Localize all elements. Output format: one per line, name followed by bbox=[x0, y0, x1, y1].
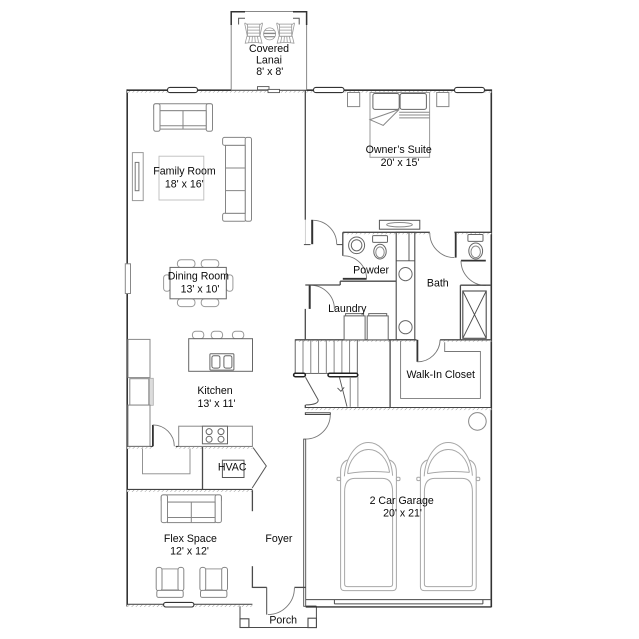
svg-text:HVAC: HVAC bbox=[218, 462, 247, 474]
svg-text:Dining Room: Dining Room bbox=[168, 270, 229, 282]
svg-text:Owner’s Suite: Owner’s Suite bbox=[366, 144, 432, 156]
svg-text:Powder: Powder bbox=[353, 264, 389, 276]
svg-text:Porch: Porch bbox=[269, 614, 297, 626]
svg-text:Lanai: Lanai bbox=[256, 54, 282, 66]
svg-text:Flex Space: Flex Space bbox=[164, 533, 217, 545]
svg-text:Laundry: Laundry bbox=[328, 303, 367, 315]
svg-text:Kitchen: Kitchen bbox=[197, 385, 232, 397]
svg-text:20' x 21': 20' x 21' bbox=[383, 508, 422, 520]
svg-text:18' x 16': 18' x 16' bbox=[165, 179, 204, 191]
svg-text:Family Room: Family Room bbox=[153, 166, 216, 178]
svg-text:20' x 15': 20' x 15' bbox=[381, 157, 420, 169]
svg-text:Covered: Covered bbox=[249, 43, 289, 55]
svg-text:2 Car Garage: 2 Car Garage bbox=[370, 495, 434, 507]
svg-text:Bath: Bath bbox=[427, 278, 449, 290]
svg-text:13' x 10': 13' x 10' bbox=[181, 284, 220, 296]
svg-text:12' x 12': 12' x 12' bbox=[170, 546, 209, 558]
svg-text:Foyer: Foyer bbox=[265, 533, 293, 545]
svg-text:8' x 8': 8' x 8' bbox=[256, 66, 283, 78]
svg-text:13' x 11': 13' x 11' bbox=[197, 398, 235, 410]
svg-text:Walk-In Closet: Walk-In Closet bbox=[406, 369, 475, 381]
